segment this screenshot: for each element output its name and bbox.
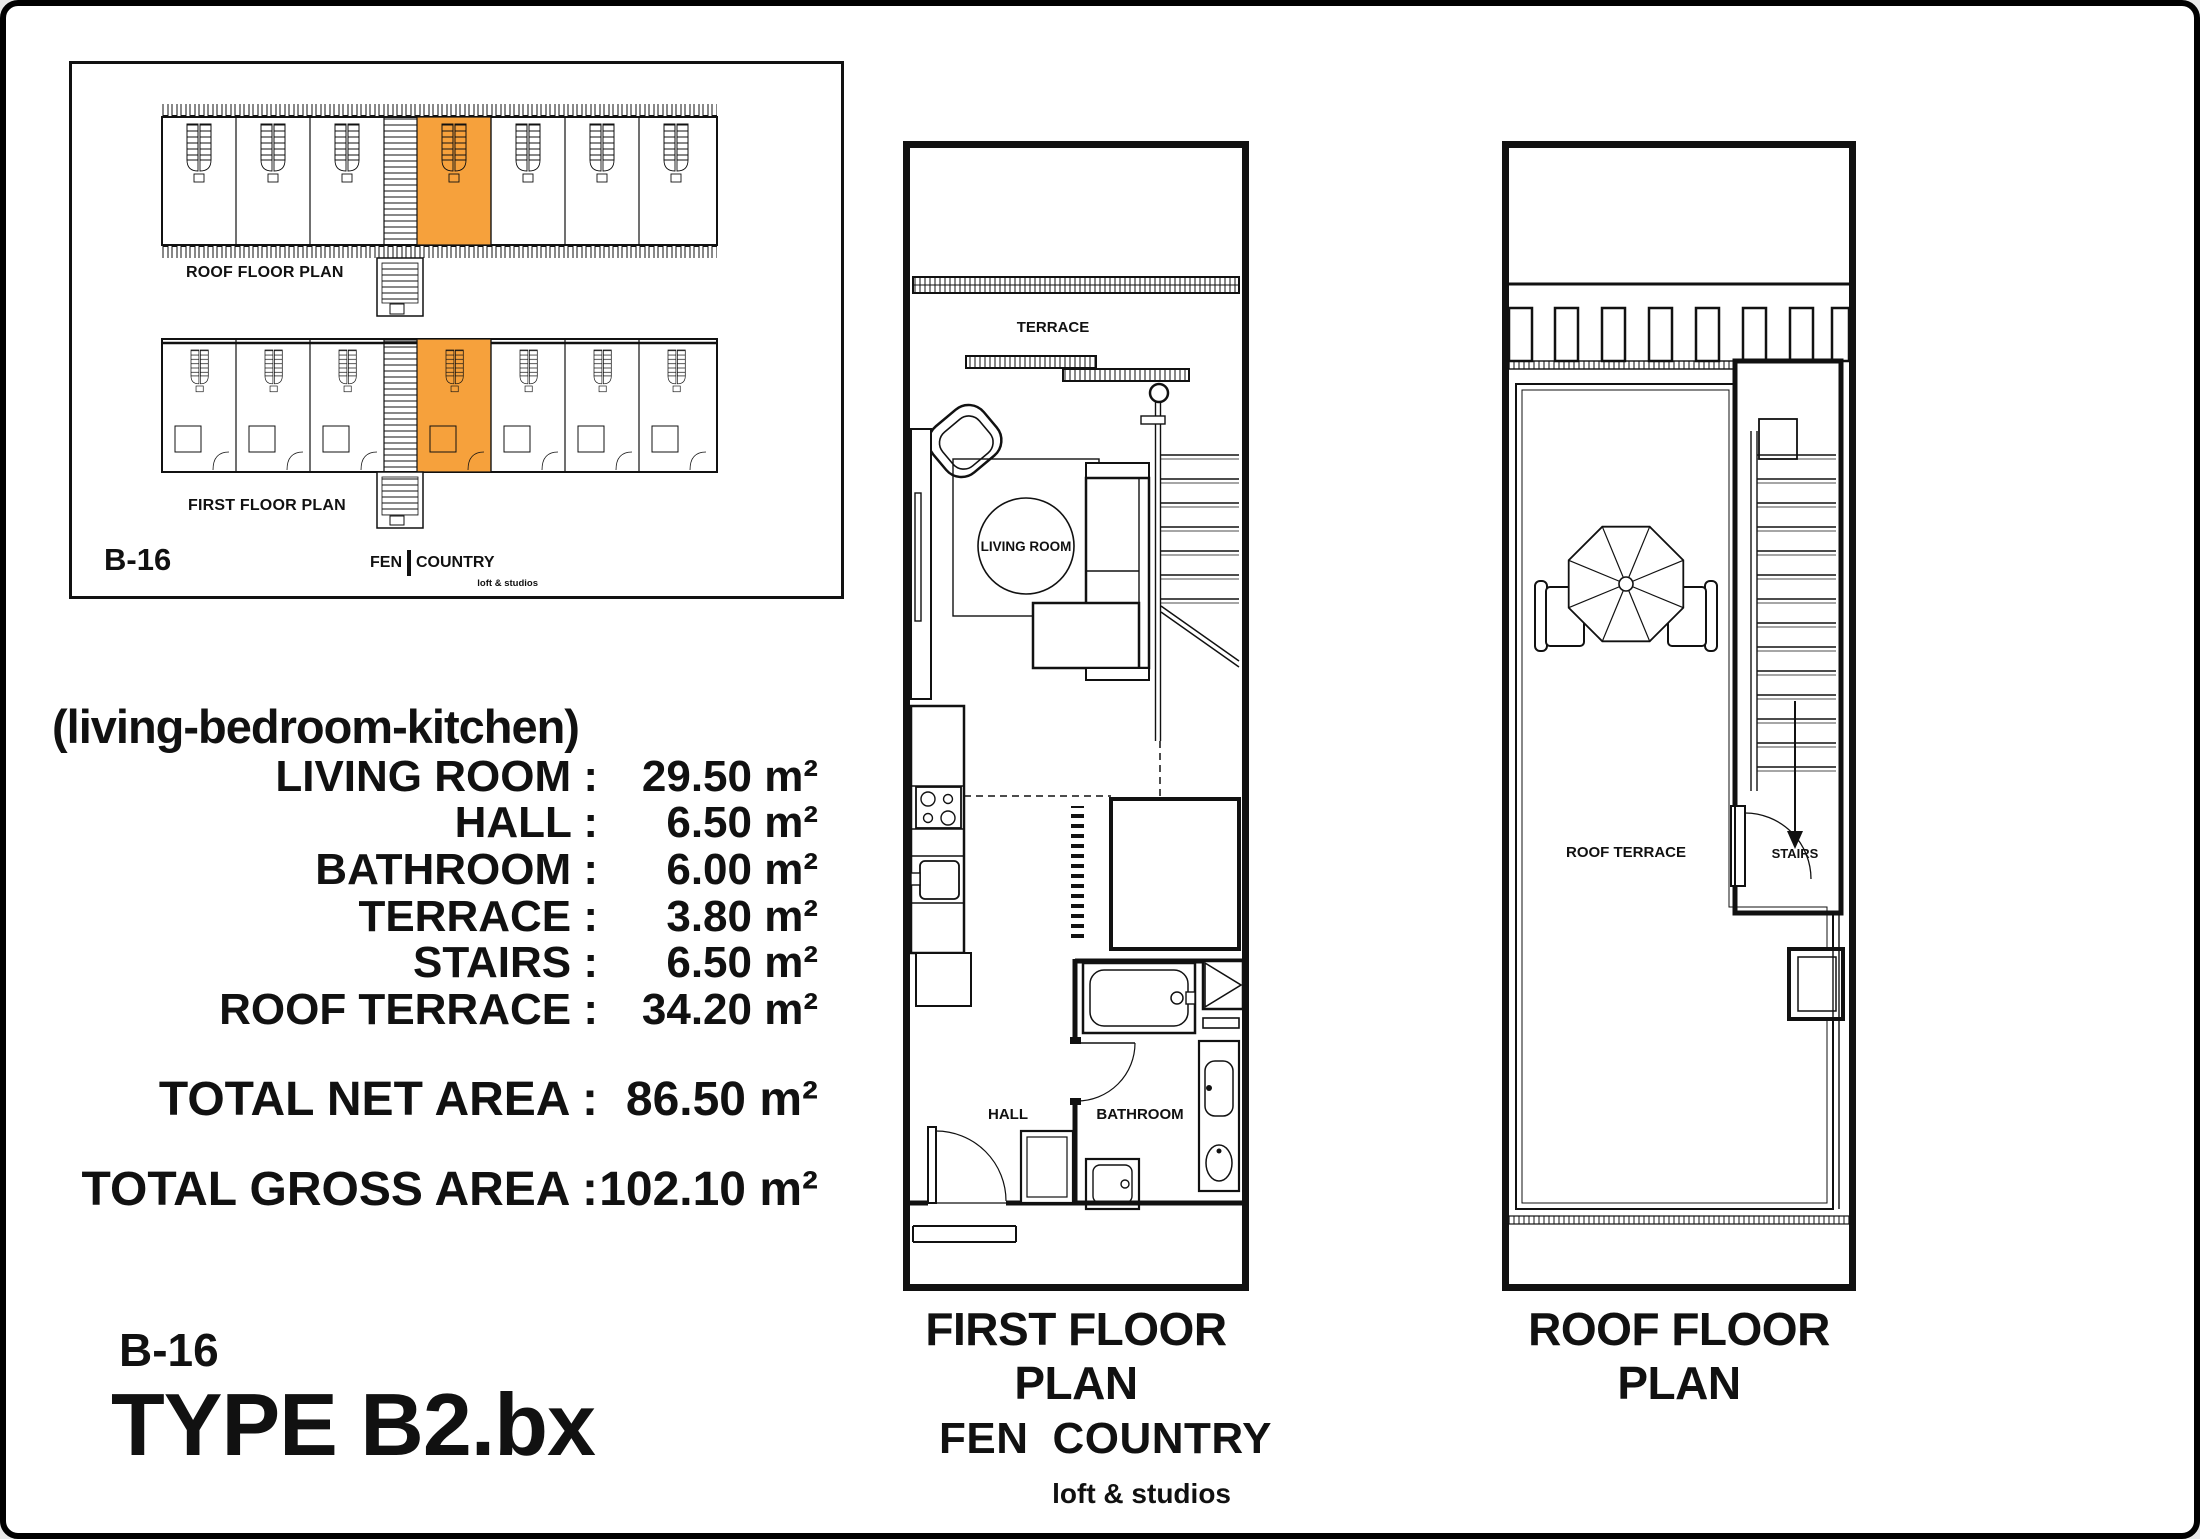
total-net-row: TOTAL NET AREA :86.50 m² [6, 1072, 818, 1127]
area-row: TERRACE :3.80 m² [6, 892, 818, 942]
roof-floor-plan: STAIRS [1502, 141, 1856, 1291]
key-plan-drawing [72, 64, 841, 596]
first-floor-plan-title: FIRST FLOOR PLAN [886, 1302, 1266, 1410]
loft-ladder [1071, 806, 1084, 944]
chimney-box [1789, 949, 1843, 1019]
area-label: ROOF TERRACE : [6, 985, 598, 1035]
area-value: 6.50 m² [598, 938, 818, 988]
area-label: STAIRS : [6, 938, 598, 988]
hall-closet [1021, 1131, 1073, 1203]
bathroom-label: BATHROOM [1096, 1106, 1183, 1123]
key-logo-country: COUNTRY [416, 554, 495, 572]
highlighted-unit-roof [417, 117, 491, 245]
living-room-label: LIVING ROOM [981, 539, 1072, 554]
total-net-value: 86.50 m² [598, 1072, 818, 1127]
key-first-plan-label: FIRST FLOOR PLAN [188, 497, 346, 515]
unit-type-title: TYPE B2.bx [111, 1374, 595, 1476]
area-row: BATHROOM :6.00 m² [6, 845, 818, 895]
area-value: 3.80 m² [598, 892, 818, 942]
area-row: ROOF TERRACE :34.20 m² [6, 985, 818, 1035]
area-value: 29.50 m² [598, 752, 818, 802]
total-gross-label: TOTAL GROSS AREA : [6, 1162, 598, 1217]
terrace-label: TERRACE [1017, 319, 1090, 336]
footer-logo: FEN COUNTRY [939, 1406, 1231, 1472]
key-logo-tagline: loft & studios [370, 578, 538, 589]
stairs-door-leaf [1731, 806, 1745, 886]
key-roof-strip [162, 104, 717, 316]
roof-floor-plan-title: ROOF FLOOR PLAN [1484, 1302, 1874, 1410]
washbasin-counter [1199, 1041, 1239, 1191]
key-plan-box: ROOF FLOOR PLAN FIRST FLOOR PLAN B-16 FE… [69, 61, 844, 599]
tv-unit [911, 429, 931, 699]
key-logo: FEN COUNTRY [370, 550, 495, 576]
first-floor-plan: LIVING ROOM [903, 141, 1249, 1291]
area-value: 6.00 m² [598, 845, 818, 895]
footer-logo-country: COUNTRY [1053, 1414, 1272, 1464]
drawing-sheet: ROOF FLOOR PLAN FIRST FLOOR PLAN B-16 FE… [0, 0, 2200, 1539]
area-label: TERRACE : [6, 892, 598, 942]
bath-shelf [1203, 1018, 1239, 1028]
kitchen [911, 706, 971, 1006]
area-value: 6.50 m² [598, 798, 818, 848]
shower-corner [1203, 961, 1243, 1009]
total-gross-row: TOTAL GROSS AREA :102.10 m² [6, 1162, 818, 1217]
bed-platform [1111, 799, 1239, 949]
roof-floor-plan-drawing: STAIRS [1502, 141, 1856, 1291]
unit-code: B-16 [119, 1323, 219, 1377]
footer-logo-fen: FEN [939, 1414, 1029, 1464]
stairs-label: STAIRS [1772, 846, 1819, 861]
unit-subtitle: (living-bedroom-kitchen) [52, 699, 579, 754]
total-gross-value: 102.10 m² [598, 1162, 818, 1217]
bathtub [1083, 963, 1195, 1033]
key-logo-fen: FEN [370, 554, 402, 572]
area-label: LIVING ROOM : [6, 752, 598, 802]
area-label: BATHROOM : [6, 845, 598, 895]
stairs-enclosure: STAIRS [1731, 361, 1841, 913]
hall-label: HALL [988, 1106, 1028, 1123]
key-unit-code: B-16 [104, 542, 171, 578]
area-value: 34.20 m² [598, 985, 818, 1035]
rear-edge-band [1509, 1216, 1849, 1224]
total-net-label: TOTAL NET AREA : [6, 1072, 598, 1127]
umbrella-table [1569, 527, 1684, 642]
entry-door-leaf [928, 1127, 936, 1203]
key-logo-divider [407, 550, 411, 576]
area-row: STAIRS :6.50 m² [6, 938, 818, 988]
area-row: HALL :6.50 m² [6, 798, 818, 848]
area-label: HALL : [6, 798, 598, 848]
first-floor-plan-drawing: LIVING ROOM [903, 141, 1249, 1291]
roof-terrace-label: ROOF TERRACE [1566, 844, 1686, 861]
stove [916, 787, 961, 828]
footer-logo-tagline: loft & studios [939, 1478, 1231, 1510]
area-row: LIVING ROOM :29.50 m² [6, 752, 818, 802]
key-roof-plan-label: ROOF FLOOR PLAN [186, 264, 344, 282]
kitchen-cabinet [916, 953, 971, 1006]
